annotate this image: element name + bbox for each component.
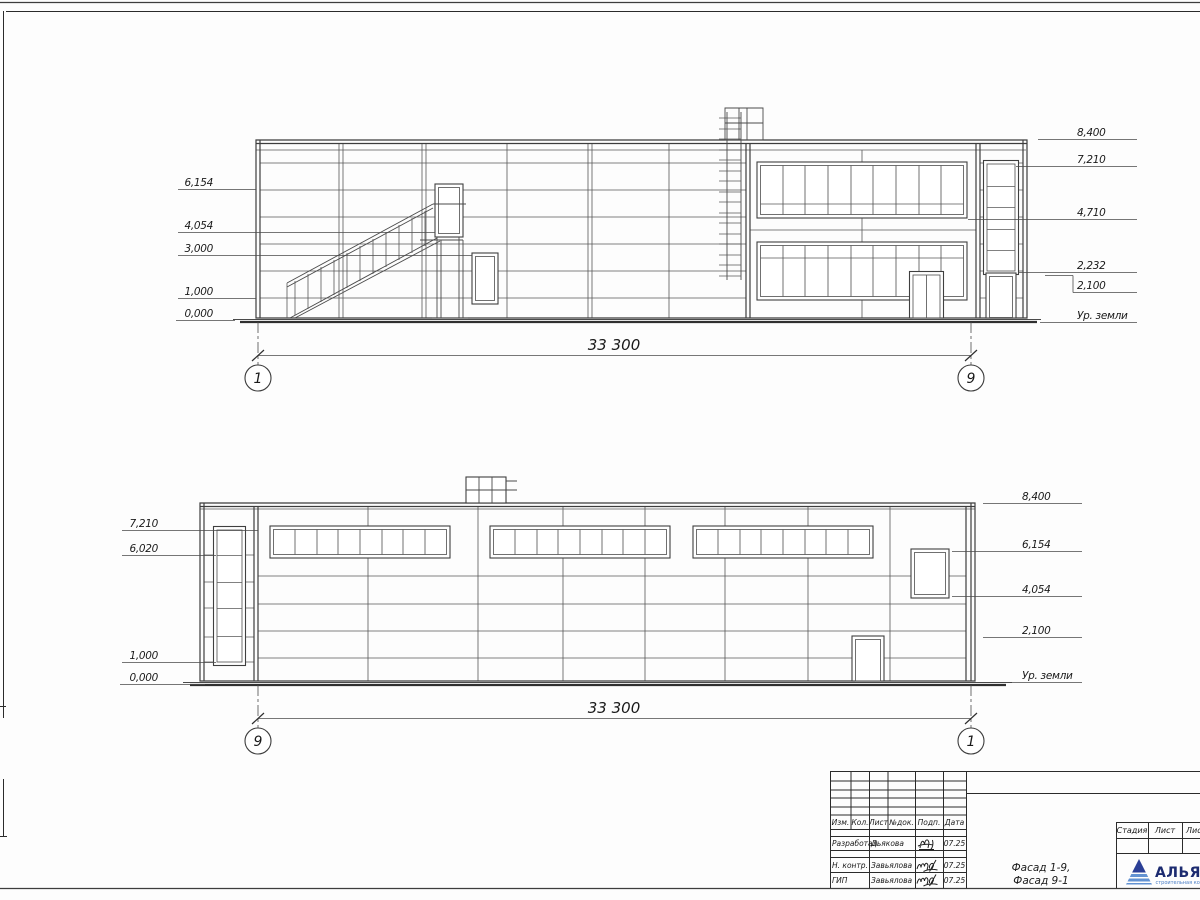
tb-col-izm: Изм. bbox=[832, 818, 850, 827]
window-band-a bbox=[270, 526, 450, 558]
stair-door bbox=[435, 184, 463, 237]
dimension-and-axes: 33 300 1 9 bbox=[245, 322, 984, 391]
side-door bbox=[852, 636, 884, 681]
elevation-label: 2,100 bbox=[1022, 625, 1051, 637]
axis-number: 9 bbox=[967, 371, 976, 387]
tb-col-list: Лист bbox=[868, 818, 889, 827]
elevation-label: 8,400 bbox=[1077, 127, 1106, 139]
rooftop-unit bbox=[466, 477, 517, 503]
signature-icon bbox=[918, 840, 934, 850]
company-logo: АЛЬЯНС строительная компания bbox=[1126, 859, 1200, 886]
window-band-b bbox=[490, 526, 670, 558]
dimension-text: 33 300 bbox=[588, 336, 641, 354]
elevation-label: 1,000 bbox=[184, 286, 213, 298]
elevation-label: 7,210 bbox=[1077, 154, 1106, 166]
tb-name: Завьялова bbox=[871, 861, 913, 870]
sheet-frame bbox=[0, 3, 1200, 889]
ladder-rungs bbox=[719, 118, 741, 276]
drawing-sheet: 6,154 4,054 3,000 1,000 0,000 8,400 7,21… bbox=[0, 0, 1200, 900]
axis-number: 1 bbox=[254, 371, 263, 387]
elevation-label: 2,100 bbox=[1077, 280, 1106, 292]
ground-level-label: Ур. земли bbox=[1077, 310, 1128, 322]
right-bay bbox=[984, 161, 1019, 319]
tb-col-data: Дата bbox=[944, 818, 965, 827]
doc-title-line1: Фасад 1-9, bbox=[1012, 862, 1071, 874]
elevation-label: 0,000 bbox=[184, 308, 213, 320]
stair-stringer bbox=[290, 238, 440, 318]
elevation-label: 4,054 bbox=[184, 220, 213, 232]
logo-pyramid-icon bbox=[1126, 859, 1152, 885]
company-name: АЛЬЯНС bbox=[1155, 865, 1200, 881]
elevation-label: 2,232 bbox=[1077, 260, 1106, 272]
window-band-frame bbox=[757, 162, 967, 218]
company-subtitle: строительная компания bbox=[1156, 880, 1200, 886]
glazed-strip bbox=[214, 527, 246, 666]
roof-ladder bbox=[719, 108, 763, 280]
single-window bbox=[911, 549, 949, 598]
ladder-top-cage bbox=[725, 108, 763, 140]
elevation-label: 6,154 bbox=[184, 177, 213, 189]
elevation-label: 3,000 bbox=[184, 243, 213, 255]
elevation-label: 7,210 bbox=[129, 518, 158, 530]
tb-role: ГИП bbox=[832, 876, 848, 885]
title-block: Изм. Кол. Лист №док. Подп. Дата Разработ… bbox=[830, 771, 1200, 888]
stair-platform bbox=[420, 237, 468, 318]
glazed-strip bbox=[984, 161, 1019, 275]
tb-col-ndok: №док. bbox=[888, 818, 914, 827]
tb-name: Завьялова bbox=[871, 876, 913, 885]
tb-date: 07.25 bbox=[944, 839, 966, 848]
facade-9-1: 7,210 6,020 1,000 0,000 8,400 6,154 4,05… bbox=[120, 477, 1082, 754]
tb-date: 07.25 bbox=[944, 876, 966, 885]
elevation-label: 1,000 bbox=[129, 650, 158, 662]
signature-icon bbox=[917, 875, 938, 887]
elevation-label: 6,020 bbox=[129, 543, 158, 555]
facade-drawing-canvas: 6,154 4,054 3,000 1,000 0,000 8,400 7,21… bbox=[0, 0, 1200, 900]
window-band-c bbox=[693, 526, 873, 558]
tb-col-podp: Подп. bbox=[918, 818, 941, 827]
leader-lines bbox=[176, 190, 472, 321]
elevation-label: 8,400 bbox=[1022, 491, 1051, 503]
axis-number: 1 bbox=[967, 734, 976, 750]
stair-balusters bbox=[287, 211, 425, 318]
window-band-upper bbox=[757, 162, 967, 218]
elevation-label: 4,054 bbox=[1022, 584, 1051, 596]
tb-sheets: Листов bbox=[1185, 826, 1200, 835]
elevation-label: 0,000 bbox=[129, 672, 158, 684]
dimension-and-axes: 33 300 9 1 bbox=[245, 685, 984, 754]
ground-level-label: Ур. земли bbox=[1022, 670, 1073, 682]
elevation-label: 4,710 bbox=[1077, 207, 1106, 219]
tb-date: 07.25 bbox=[944, 861, 966, 870]
facade-1-9: 6,154 4,054 3,000 1,000 0,000 8,400 7,21… bbox=[176, 108, 1137, 391]
tb-sheet: Лист bbox=[1154, 826, 1176, 835]
left-glazed-strip bbox=[214, 527, 246, 666]
frame-left-line bbox=[0, 11, 7, 837]
signature-icon bbox=[917, 860, 938, 872]
tb-stage: Стадия bbox=[1117, 826, 1148, 835]
elevation-marks-left: 6,154 4,054 3,000 1,000 0,000 bbox=[176, 177, 472, 321]
side-door bbox=[986, 273, 1016, 318]
tb-col-kol: Кол. bbox=[851, 818, 868, 827]
doc-title-line2: Фасад 9-1 bbox=[1013, 875, 1068, 887]
tb-role: Н. контр. bbox=[832, 861, 868, 870]
tb-name: Дьякова bbox=[870, 839, 904, 848]
axis-number: 9 bbox=[254, 734, 263, 750]
dimension-text: 33 300 bbox=[588, 699, 641, 717]
elevation-label: 6,154 bbox=[1022, 539, 1051, 551]
